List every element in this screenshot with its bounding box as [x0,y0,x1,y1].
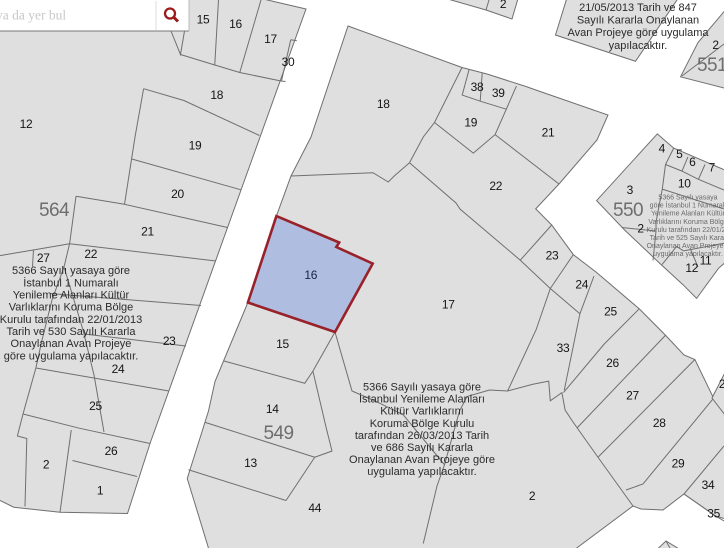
svg-text:12: 12 [20,117,33,131]
svg-text:2: 2 [500,0,507,11]
svg-text:21/05/2013 Tarih ve 847: 21/05/2013 Tarih ve 847 [579,2,697,14]
svg-text:5366 Sayılı yasaya: 5366 Sayılı yasaya [658,195,717,202]
svg-text:uygulama yapılacaktır.: uygulama yapılacaktır. [367,466,476,478]
svg-text:23: 23 [546,249,559,263]
svg-text:2: 2 [529,489,536,503]
svg-text:13: 13 [244,456,257,470]
svg-text:yapılacaktır.: yapılacaktır. [609,40,668,52]
svg-text:16: 16 [229,17,242,31]
svg-text:5366 Sayılı yasaya göre: 5366 Sayılı yasaya göre [12,265,130,277]
svg-text:22: 22 [84,247,97,261]
svg-text:33: 33 [557,341,570,355]
svg-text:17: 17 [442,298,455,312]
svg-text:38: 38 [471,80,484,94]
svg-text:7: 7 [709,161,716,175]
svg-text:Kültür Varlıklarını: Kültür Varlıklarını [380,406,464,418]
svg-text:Yenileme Alanları Kültür: Yenileme Alanları Kültür [651,211,724,218]
svg-text:İstanbul 1 Numaralı: İstanbul 1 Numaralı [23,276,118,289]
svg-text:2: 2 [637,221,644,235]
svg-text:Kurulu tarafından 22/01/20: Kurulu tarafından 22/01/20 [647,227,724,234]
svg-text:2: 2 [712,38,719,52]
svg-text:Yenileme Alanları Kültür: Yenileme Alanları Kültür [13,290,130,302]
svg-text:Tarih ve 530 Sayılı Kararla: Tarih ve 530 Sayılı Kararla [6,326,136,338]
svg-text:549: 549 [264,423,294,444]
svg-text:Onaylanan Avan Projeye: Onaylanan Avan Projeye [11,338,132,350]
svg-text:İstanbul Yenileme Alanları: İstanbul Yenileme Alanları [359,393,485,406]
svg-text:Onaylanan Avan Projeye göre: Onaylanan Avan Projeye göre [349,454,495,466]
svg-text:21: 21 [141,225,154,239]
svg-text:16: 16 [304,268,317,282]
svg-text:17: 17 [264,32,277,46]
svg-text:550: 550 [613,200,643,221]
svg-text:18: 18 [210,88,223,102]
svg-text:27: 27 [626,389,639,403]
svg-text:15: 15 [276,337,289,351]
svg-text:35: 35 [707,506,720,520]
svg-text:26: 26 [105,444,118,458]
svg-text:20: 20 [171,187,184,201]
svg-text:göre İstanbul 1 Numaralı: göre İstanbul 1 Numaralı [650,201,724,210]
svg-text:28: 28 [653,416,666,430]
svg-text:19: 19 [464,116,477,130]
svg-text:5366 Sayılı yasaya göre: 5366 Sayılı yasaya göre [363,382,481,394]
svg-text:tarafından 26/03/2013 Tarih: tarafından 26/03/2013 Tarih [355,430,489,442]
svg-text:Koruma Bölge Kurulu: Koruma Bölge Kurulu [370,418,475,430]
svg-text:5: 5 [676,147,683,161]
svg-text:19: 19 [189,139,202,153]
svg-text:Varlıklarını Koruma Bölge: Varlıklarını Koruma Bölge [9,302,134,314]
svg-text:uygulama yapılacaktır.: uygulama yapılacaktır. [653,251,723,258]
svg-text:Onaylanan Avan Projeye g: Onaylanan Avan Projeye g [647,243,724,250]
svg-text:39: 39 [492,86,505,100]
svg-text:2: 2 [719,377,724,391]
svg-text:Kurulu tarafından 22/01/2013: Kurulu tarafından 22/01/2013 [0,314,142,326]
svg-text:551: 551 [697,55,724,76]
svg-text:12: 12 [685,261,698,275]
svg-text:4: 4 [659,141,666,155]
svg-text:3: 3 [627,183,634,197]
svg-text:18: 18 [377,97,390,111]
svg-text:15: 15 [197,13,210,27]
svg-text:10: 10 [678,176,691,190]
svg-text:22: 22 [489,179,502,193]
svg-text:2: 2 [43,458,50,472]
svg-text:25: 25 [604,305,617,319]
svg-text:44: 44 [308,501,321,515]
svg-text:Varlıklarını Koruma Bölge: Varlıklarını Koruma Bölge [648,219,724,226]
svg-text:26: 26 [606,356,619,370]
svg-text:göre uygulama yapılacaktır.: göre uygulama yapılacaktır. [4,350,139,362]
svg-text:23: 23 [163,334,176,348]
svg-text:ya da yer bul: ya da yer bul [0,8,66,23]
svg-text:14: 14 [266,402,279,416]
svg-text:34: 34 [702,478,715,492]
svg-text:564: 564 [39,200,70,221]
svg-text:30: 30 [282,55,295,69]
svg-text:29: 29 [672,457,685,471]
svg-text:27: 27 [37,251,50,265]
svg-text:ve 686 Sayılı Kararla: ve 686 Sayılı Kararla [371,442,474,454]
svg-text:Avan Projeye göre uygulama: Avan Projeye göre uygulama [567,27,709,39]
svg-text:Tarih ve 525 Sayılı Karar: Tarih ve 525 Sayılı Karar [650,235,724,242]
svg-text:Sayılı Kararla Onaylanan: Sayılı Kararla Onaylanan [577,15,699,27]
svg-text:1: 1 [97,484,104,498]
svg-text:6: 6 [689,155,696,169]
svg-text:21: 21 [542,126,555,140]
svg-text:24: 24 [575,278,588,292]
svg-text:24: 24 [112,362,125,376]
svg-text:25: 25 [89,399,102,413]
